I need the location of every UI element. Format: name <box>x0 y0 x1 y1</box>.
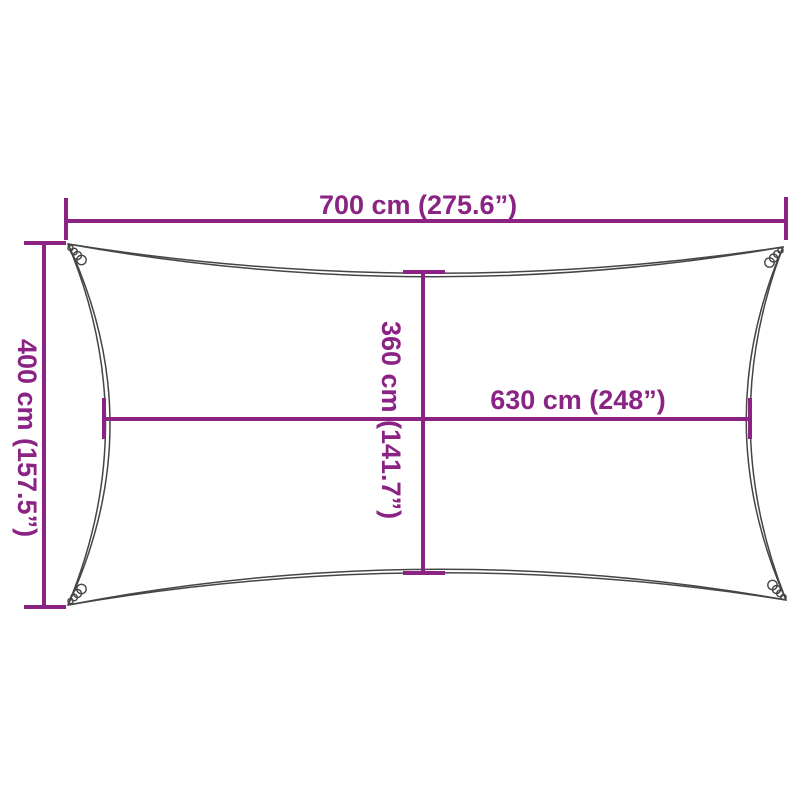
dimension-width-middle: 630 cm (248”) <box>104 385 750 439</box>
label-width-top: 700 cm (275.6”) <box>319 190 517 220</box>
diagram-canvas: 700 cm (275.6”) 400 cm (157.5”) 360 cm (… <box>0 0 800 800</box>
dimension-width-top: 700 cm (275.6”) <box>66 190 786 240</box>
corner-grommet-top-right <box>765 248 783 267</box>
dimension-height-left: 400 cm (157.5”) <box>12 243 66 607</box>
sail-edge-right <box>750 247 786 600</box>
label-width-middle: 630 cm (248”) <box>490 385 666 415</box>
label-height-left: 400 cm (157.5”) <box>12 339 42 537</box>
sail-edge-left <box>68 244 106 605</box>
product-dimension-diagram: 700 cm (275.6”) 400 cm (157.5”) 360 cm (… <box>0 0 800 800</box>
shade-sail-outline <box>68 244 786 605</box>
sail-edge-bottom <box>68 573 786 605</box>
sail-edge-top <box>68 244 783 273</box>
dimension-height-middle: 360 cm (141.7”) <box>376 271 445 574</box>
